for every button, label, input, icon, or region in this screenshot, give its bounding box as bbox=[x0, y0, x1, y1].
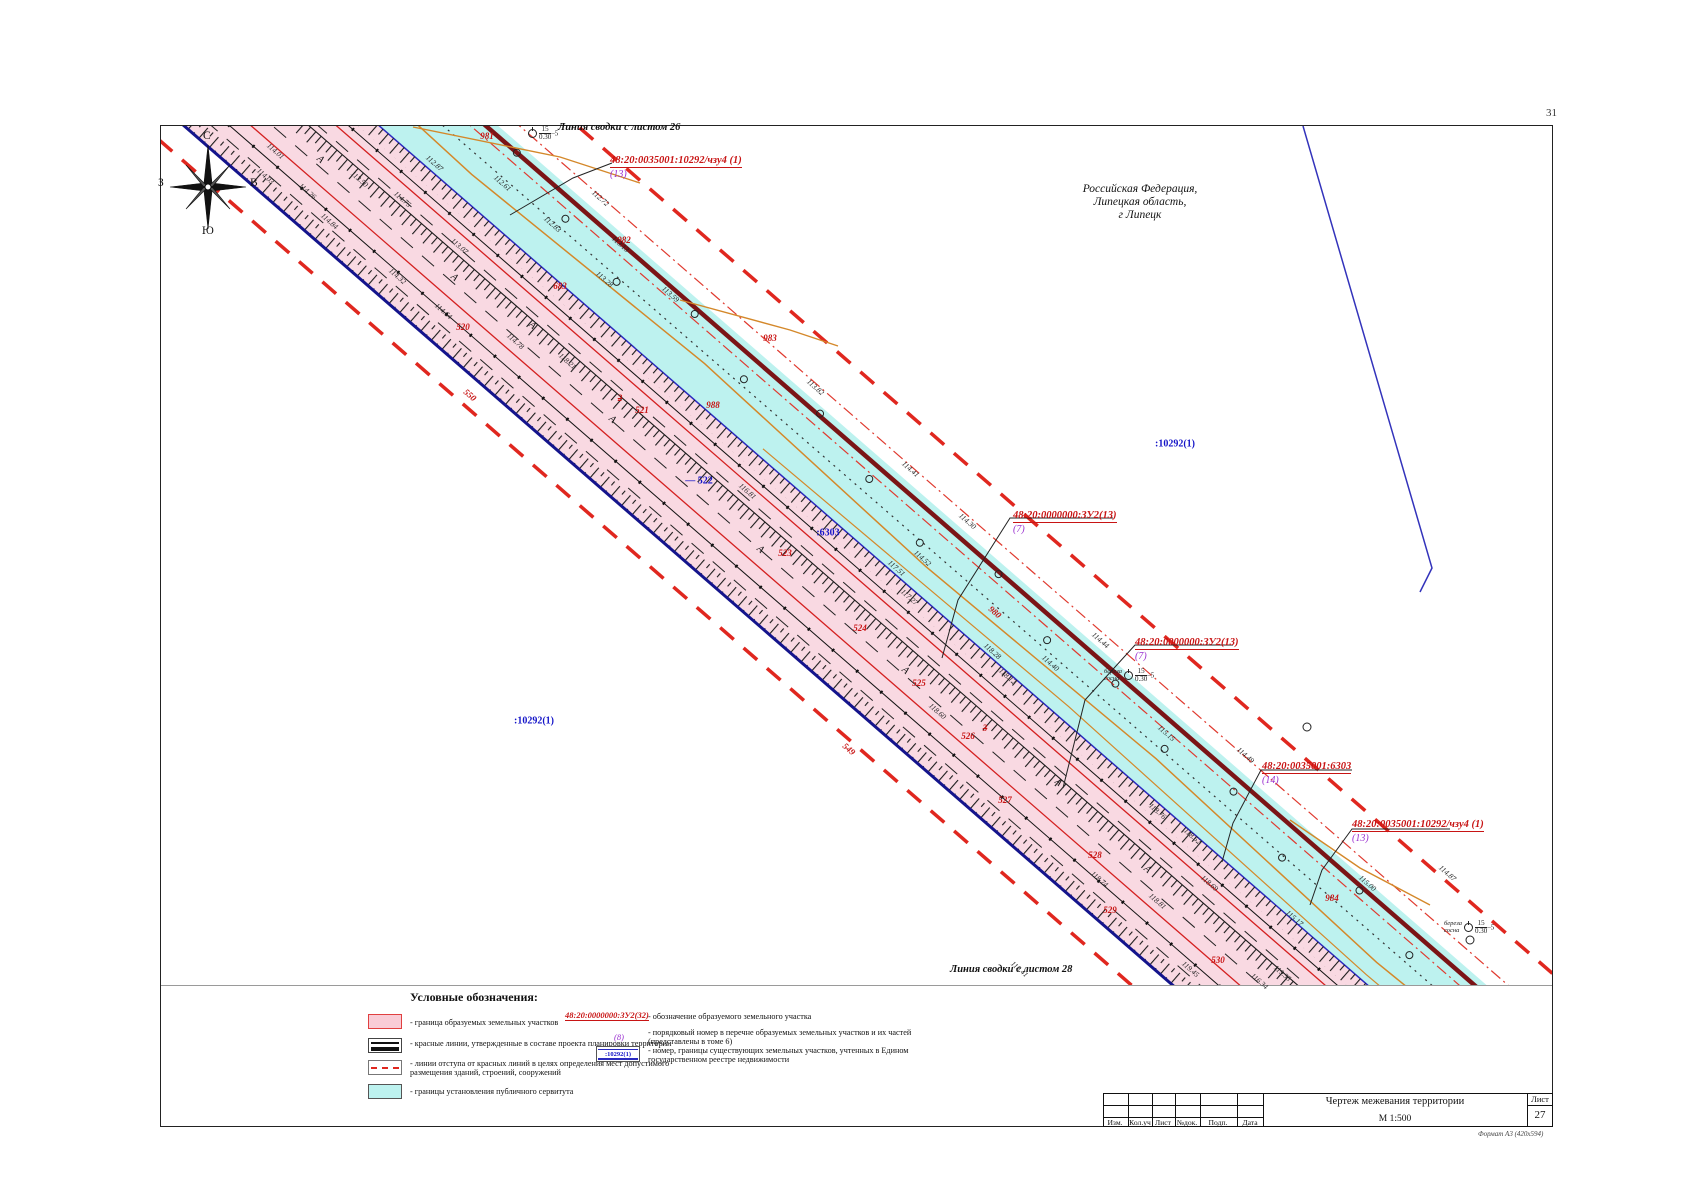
tree-count: –5 bbox=[1147, 672, 1154, 680]
cadastral-code: 48:20:0035001:6303 bbox=[1262, 761, 1351, 774]
tree-annotation: березасосна150.30–5 bbox=[1104, 668, 1154, 683]
titleblock-col-podp: Подп. bbox=[1209, 1118, 1228, 1127]
tree-size-fraction: 150.30 bbox=[539, 126, 551, 141]
sheet-label: Лист bbox=[1527, 1094, 1553, 1104]
cadastral-seq-number: (14) bbox=[1262, 775, 1351, 786]
legend-symbol-formed-parcels bbox=[368, 1014, 402, 1029]
titleblock-col-data: Дата bbox=[1242, 1118, 1257, 1127]
region-line-2: Липецкая область, bbox=[1050, 196, 1230, 209]
cadastral-code: 48:20:0000000:ЗУ2(13) bbox=[1013, 510, 1117, 523]
drawing-scale: М 1:500 bbox=[1263, 1114, 1527, 1124]
cadastral-seq-number: (13) bbox=[610, 169, 742, 180]
point-number: 521 bbox=[635, 405, 649, 415]
drawing-title: Чертеж межевания территории bbox=[1263, 1096, 1527, 1107]
point-number: 525 bbox=[912, 678, 926, 688]
point-number: 683 bbox=[553, 281, 567, 291]
cadastral-seq-number: (7) bbox=[1135, 651, 1239, 662]
point-number: 529 bbox=[1103, 905, 1117, 915]
legend-egrn-number: :10292(1) bbox=[597, 1051, 639, 1058]
tree-size-fraction: 150.30 bbox=[1135, 668, 1147, 683]
tree-annotation: березасосна150.30–5 bbox=[1444, 920, 1494, 935]
legend-label: - обозначение образуемого земельного уча… bbox=[648, 1012, 938, 1021]
point-number: 984 bbox=[1325, 893, 1339, 903]
cadastral-code: 48:20:0000000:ЗУ2(13) bbox=[1135, 637, 1239, 650]
titleblock-col-ndok: №док. bbox=[1177, 1118, 1198, 1127]
crossed-point-number: 3 bbox=[983, 723, 988, 733]
legend-label: - номер, границы существующих земельных … bbox=[648, 1046, 938, 1064]
cadastral-seq-number: (7) bbox=[1013, 524, 1117, 535]
sheet-number: 27 bbox=[1527, 1109, 1553, 1121]
tree-annotation: 150.30–5 bbox=[528, 126, 558, 141]
point-number: 528 bbox=[1088, 850, 1102, 860]
cadastral-code: 48:20:0035001:10292/чзу4 (1) bbox=[610, 155, 742, 168]
tree-count: –5 bbox=[1487, 924, 1494, 932]
legend-label: - границы установления публичного сервит… bbox=[410, 1087, 680, 1096]
point-number: 988 bbox=[706, 400, 720, 410]
legend-symbol-egrn-parcel: :10292(1) bbox=[596, 1046, 640, 1062]
compass-east-label: В bbox=[250, 177, 258, 189]
titleblock-col-list: Лист bbox=[1155, 1118, 1171, 1127]
parcel-number-label: :6303 bbox=[816, 528, 839, 539]
compass-north-label: С bbox=[203, 130, 211, 142]
cadastral-label: 48:20:0000000:ЗУ2(13)(7) bbox=[1135, 632, 1239, 662]
point-number: 981 bbox=[480, 131, 494, 141]
compass-rose: С Ю З В bbox=[160, 133, 256, 237]
tree-icon bbox=[1464, 923, 1473, 932]
point-number: 526 bbox=[961, 731, 975, 741]
cadastral-label: 48:20:0000000:ЗУ2(13)(7) bbox=[1013, 505, 1117, 535]
cadastral-survey-sheet: 31 С Ю З В Линия сводки с листом 26 Лини… bbox=[0, 0, 1697, 1200]
cadastral-label: 48:20:0035001:10292/чзу4 (1)(13) bbox=[610, 150, 742, 180]
point-number: 530 bbox=[1211, 955, 1225, 965]
cadastral-label: 48:20:0035001:6303(14) bbox=[1262, 756, 1351, 786]
region-line-3: г Липецк bbox=[1050, 209, 1230, 222]
legend-symbol-servitude bbox=[368, 1084, 402, 1099]
legend-title: Условные обозначения: bbox=[410, 990, 538, 1005]
compass-west-label: З bbox=[158, 177, 164, 189]
compass-star-icon bbox=[160, 133, 256, 237]
legend-symbol-seq-number: (8) bbox=[614, 1032, 624, 1042]
parcel-number-label: :10292(1) bbox=[514, 716, 554, 727]
point-number: 520 bbox=[456, 322, 470, 332]
legend-label: - порядковый номер в перечне образуемых … bbox=[648, 1028, 938, 1046]
tree-icon bbox=[1124, 671, 1133, 680]
legend-symbol-offset-lines bbox=[368, 1060, 402, 1075]
region-line-1: Российская Федерация, bbox=[1050, 183, 1230, 196]
cadastral-code: 48:20:0035001:10292/чзу4 (1) bbox=[1352, 819, 1484, 832]
region-label: Российская Федерация, Липецкая область, … bbox=[1050, 183, 1230, 223]
point-number: 527 bbox=[998, 795, 1012, 805]
legend-symbol-red-lines bbox=[368, 1038, 402, 1053]
compass-south-label: Ю bbox=[202, 225, 214, 237]
crossed-point-number: 2 bbox=[618, 393, 623, 403]
map-area bbox=[160, 125, 1553, 986]
tree-species: березасосна bbox=[1444, 921, 1462, 935]
tree-size-fraction: 150.30 bbox=[1475, 920, 1487, 935]
grid-corner-number: 31 bbox=[1546, 107, 1557, 119]
titleblock-col-koluch: Кол.уч bbox=[1129, 1118, 1151, 1127]
point-number: 983 bbox=[763, 333, 777, 343]
junction-note-sheet-26: Линия сводки с листом 26 bbox=[558, 122, 680, 133]
tree-species: березасосна bbox=[1104, 669, 1122, 683]
tree-icon bbox=[528, 129, 537, 138]
tree-count: –5 bbox=[551, 130, 558, 138]
legend-symbol-parcel-code: 48:20:0000000:ЗУ2(32) bbox=[565, 1010, 649, 1021]
corridor-strip-drawing bbox=[160, 125, 1553, 985]
titleblock-col-izm: Изм. bbox=[1107, 1118, 1122, 1127]
point-number: 524 bbox=[853, 623, 867, 633]
cadastral-seq-number: (13) bbox=[1352, 833, 1484, 844]
point-number: 523 bbox=[778, 548, 792, 558]
format-note: Формат А3 (420х594) bbox=[1478, 1130, 1543, 1138]
parcel-number-label: — 522 bbox=[685, 476, 713, 487]
parcel-number-label: :10292(1) bbox=[1155, 439, 1195, 450]
cadastral-label: 48:20:0035001:10292/чзу4 (1)(13) bbox=[1352, 814, 1484, 844]
